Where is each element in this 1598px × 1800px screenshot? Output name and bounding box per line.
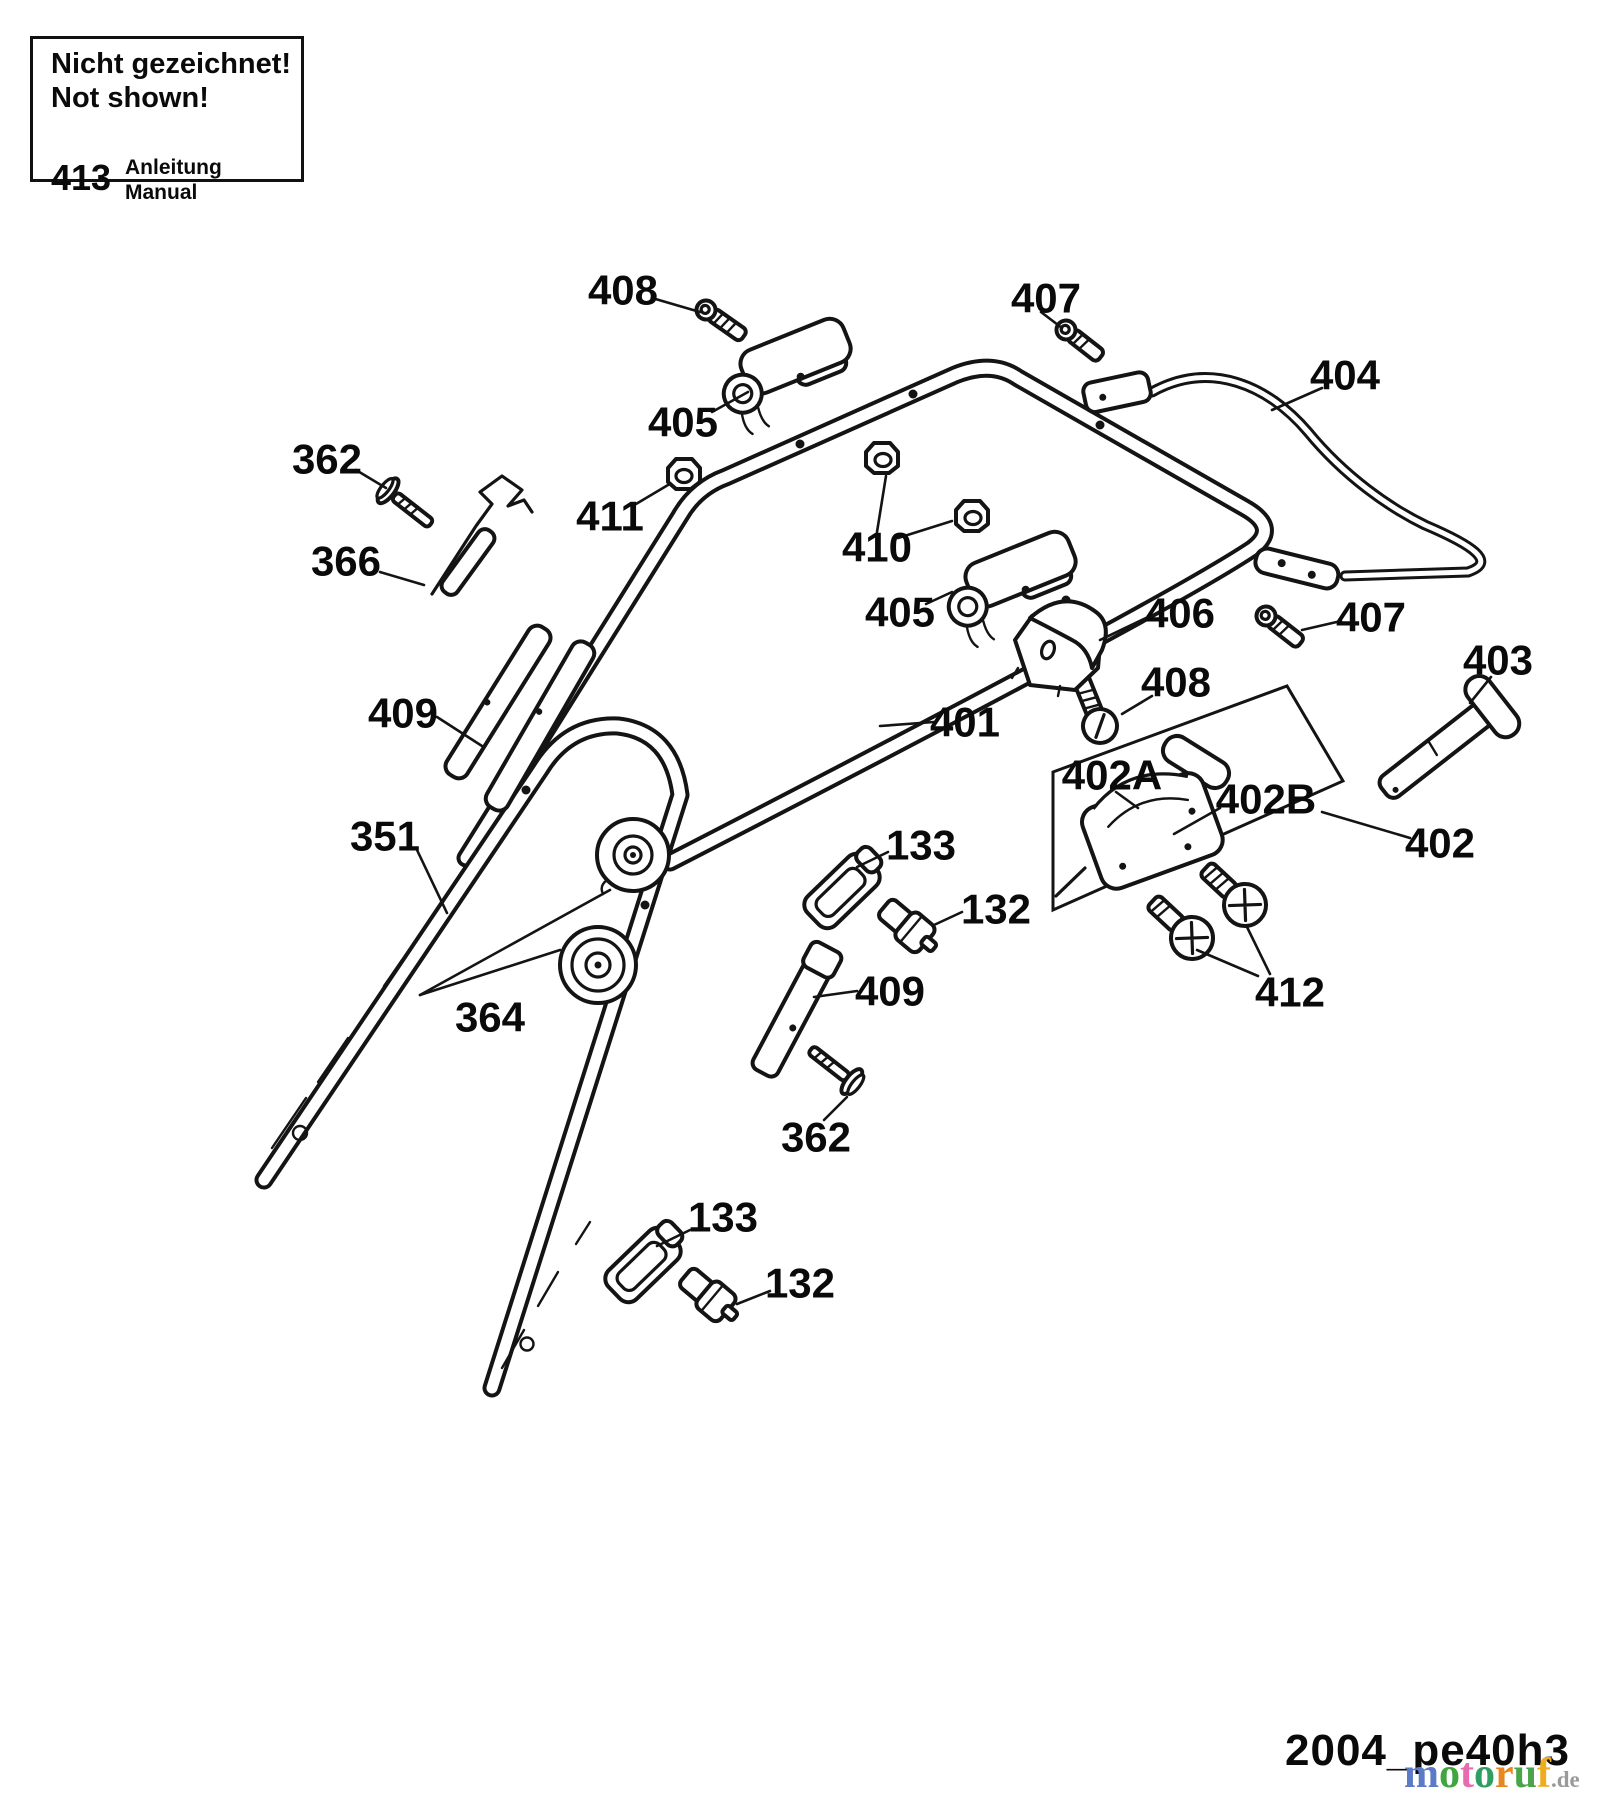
- locking-pin: [1362, 671, 1524, 819]
- part-label-132: 132: [765, 1260, 835, 1307]
- part-label-401: 401: [930, 699, 1000, 746]
- cable-clip: [873, 894, 945, 962]
- part-label-404: 404: [1310, 352, 1381, 399]
- part-label-403: 403: [1463, 637, 1533, 684]
- watermark-letter: t: [1460, 1751, 1474, 1797]
- part-label-411: 411: [576, 493, 644, 540]
- bail-bar: [1082, 371, 1481, 591]
- watermark-letter: o: [1474, 1751, 1495, 1797]
- part-label-410: 410: [842, 524, 912, 571]
- part-label-402A: 402A: [1062, 752, 1162, 799]
- watermark-letter: m: [1404, 1751, 1439, 1797]
- notice-text: Nicht gezeichnet! Not shown!: [51, 47, 291, 115]
- part-label-407: 407: [1336, 594, 1406, 641]
- cable-clip: [674, 1263, 746, 1331]
- part-number-labels: 4084054074043623664114104054064074034014…: [292, 267, 1533, 1307]
- flange-nut: [866, 443, 898, 473]
- not-shown-notice-box: Nicht gezeichnet! Not shown! 413 Anleitu…: [30, 36, 304, 182]
- watermark-letter: u: [1514, 1751, 1537, 1797]
- hand-knob: [597, 819, 669, 894]
- watermark-letter: o: [1439, 1751, 1460, 1797]
- exploded-parts-drawing: 4084054074043623664114104054064074034014…: [0, 0, 1598, 1800]
- part-label-133: 133: [688, 1194, 758, 1241]
- part-label-409: 409: [368, 690, 438, 737]
- parts-diagram-page: 4084054074043623664114104054064074034014…: [0, 0, 1598, 1800]
- part-label-406: 406: [1145, 590, 1215, 637]
- part-label-413: 413: [51, 157, 111, 199]
- part-label-132: 132: [961, 886, 1031, 933]
- part-label-407: 407: [1011, 275, 1081, 322]
- part-label-133: 133: [886, 822, 956, 869]
- part-label-402B: 402B: [1216, 776, 1316, 823]
- part-label-364: 364: [455, 994, 526, 1041]
- part-label-408: 408: [588, 267, 658, 314]
- flange-nut: [668, 459, 700, 489]
- part-name-manual: Anleitung Manual: [125, 155, 222, 205]
- part-label-366: 366: [311, 538, 381, 585]
- flange-nut: [956, 501, 988, 531]
- part-label-362: 362: [292, 436, 362, 483]
- watermark-letter: f: [1537, 1751, 1551, 1797]
- part-label-405: 405: [865, 589, 935, 636]
- flat-head-screw: [373, 474, 440, 536]
- motoruf-watermark: motoruf.de: [1404, 1750, 1580, 1798]
- carriage-screw: [1253, 603, 1307, 651]
- part-label-409: 409: [855, 968, 925, 1015]
- hand-knob: [560, 927, 636, 1003]
- part-label-405: 405: [648, 399, 718, 446]
- watermark-letter: r: [1495, 1751, 1514, 1797]
- flat-head-screw: [802, 1038, 869, 1099]
- lower-handle-slots: [272, 960, 590, 1368]
- part-label-362: 362: [781, 1114, 851, 1161]
- part-label-351: 351: [350, 813, 420, 860]
- watermark-suffix: .de: [1551, 1767, 1580, 1792]
- part-label-412: 412: [1255, 969, 1325, 1016]
- cable-grommet: [600, 1216, 693, 1307]
- carriage-screw: [693, 297, 749, 344]
- part-label-408: 408: [1141, 659, 1211, 706]
- part-label-402: 402: [1405, 820, 1475, 867]
- carriage-screw: [1053, 317, 1107, 365]
- cable-guide-rod: [432, 476, 532, 598]
